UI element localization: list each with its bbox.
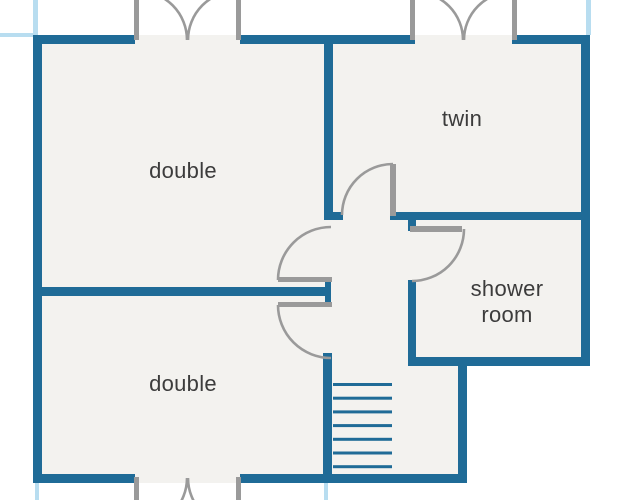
stair-step xyxy=(333,397,392,400)
room-label-double-bottom: double xyxy=(103,371,263,397)
bottom-wall-left-segment xyxy=(33,474,135,483)
stair-step xyxy=(333,465,392,468)
window-jamb xyxy=(236,477,241,500)
section-marker xyxy=(33,0,38,35)
hall-wall-lower xyxy=(323,353,332,483)
window-top-right xyxy=(410,0,517,40)
window-top-left xyxy=(134,0,241,40)
room-label-shower-room: shower room xyxy=(452,276,562,328)
window-jamb xyxy=(410,0,415,40)
section-marker xyxy=(586,0,591,35)
window-jamb xyxy=(512,0,517,40)
top-wall-left-segment xyxy=(33,35,135,44)
section-marker xyxy=(35,483,39,500)
room-label-twin: twin xyxy=(382,106,542,132)
door-leaf xyxy=(278,302,332,307)
bottom-wall-right-segment xyxy=(240,474,467,483)
shower-left-wall-lower xyxy=(408,280,416,366)
stair-step xyxy=(333,438,392,441)
door-leaf xyxy=(390,164,396,216)
stair-step xyxy=(333,383,392,386)
room-label-double-top: double xyxy=(103,158,263,184)
top-wall-right-segment xyxy=(512,35,590,44)
twin-bottom-wall xyxy=(390,212,590,220)
window-casement-arc xyxy=(415,0,463,40)
window-casement-arc xyxy=(464,0,512,40)
window-casement-arc xyxy=(138,0,187,40)
floor-plan-drawing xyxy=(0,0,623,500)
stair-step xyxy=(333,452,392,455)
window-jamb xyxy=(134,0,139,40)
floor-plan: double twin double shower room xyxy=(0,0,623,500)
right-wall xyxy=(581,35,590,366)
left-wall xyxy=(33,35,42,483)
door-leaf xyxy=(278,277,332,282)
stairwell-right-wall xyxy=(458,357,467,483)
section-marker xyxy=(324,483,328,500)
stair-step xyxy=(333,410,392,413)
double-divider-end-post xyxy=(325,280,331,303)
section-marker xyxy=(0,33,33,37)
window-jamb xyxy=(236,0,241,40)
stair-step xyxy=(333,424,392,427)
door-leaf xyxy=(410,226,462,232)
building-floor xyxy=(33,35,590,483)
double-divider-wall xyxy=(33,287,331,296)
hall-wall-upper xyxy=(324,35,333,217)
window-jamb xyxy=(134,477,139,500)
shower-bottom-wall xyxy=(408,357,590,366)
window-casement-arc xyxy=(188,0,237,40)
hall-wall-upper-foot xyxy=(324,212,343,220)
